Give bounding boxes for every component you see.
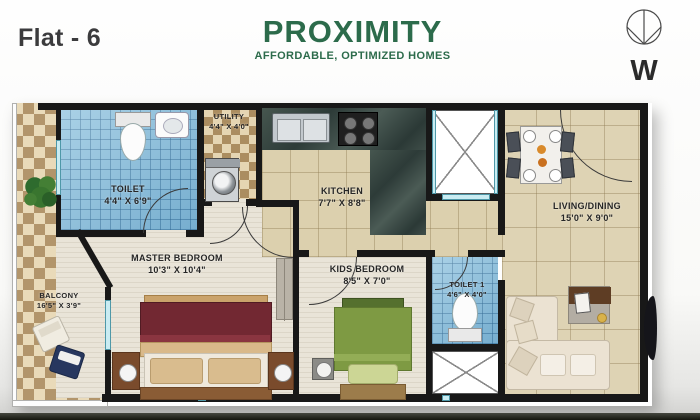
tv-icon <box>644 296 657 360</box>
compass-icon <box>621 6 667 50</box>
flat-number-label: Flat - 6 <box>18 24 101 53</box>
living-dining-label: LIVING/DINING15'0" X 9'0" <box>522 201 652 224</box>
window-bottom-kids <box>442 395 450 401</box>
wall-kitchen-living <box>498 103 505 235</box>
toilet1-label: TOILET 14'6" X 4'0" <box>433 280 501 300</box>
cushion-icon <box>570 354 596 376</box>
brand-block: PROXIMITY AFFORDABLE, OPTIMIZED HOMES <box>230 16 475 62</box>
wall-toilet-bottom-a <box>56 230 146 237</box>
double-bed-icon <box>140 295 270 398</box>
washing-machine-icon <box>205 158 239 202</box>
wall-toilet1-top-b <box>468 250 505 257</box>
brand-tagline: AFFORDABLE, OPTIMIZED HOMES <box>230 50 475 62</box>
duct-shaft-top <box>432 110 498 194</box>
dining-table-icon <box>520 126 562 184</box>
compass: W <box>618 6 670 86</box>
stool-icon <box>312 358 334 380</box>
wall-toilet1-shaft <box>432 344 502 351</box>
plant-icon <box>20 172 62 214</box>
balcony-parapet-bottom <box>12 400 108 407</box>
dining-chair-icon <box>560 157 575 178</box>
wall-kids-top-a <box>299 250 309 257</box>
window-shaft-left <box>432 110 436 194</box>
toilet-label: TOILET4'4" X 6'9" <box>68 184 188 207</box>
floorplan-poster: Flat - 6 PROXIMITY AFFORDABLE, OPTIMIZED… <box>0 0 700 420</box>
master-bedroom-label: MASTER BEDROOM10'3" X 10'4" <box>107 253 247 276</box>
compass-west-letter: W <box>618 57 670 86</box>
dining-chair-icon <box>506 131 521 152</box>
single-bed-icon <box>334 298 410 398</box>
toilet-icon <box>115 112 149 160</box>
cushion-icon <box>540 354 566 376</box>
balcony-parapet-left <box>12 103 17 406</box>
washbasin-icon <box>155 112 189 138</box>
kids-bedroom-label: KIDS BEDROOM8'5" X 7'0" <box>305 264 429 287</box>
nightstand-icon <box>268 352 294 390</box>
dining-chair-icon <box>506 157 521 178</box>
toilet-icon <box>448 293 480 341</box>
duct-shaft-bottom <box>432 351 500 394</box>
window-shaft-bottom <box>442 194 490 200</box>
window-shaft-right <box>494 110 498 194</box>
dining-chair-icon <box>560 131 575 152</box>
bottom-accent-bar <box>0 413 700 420</box>
balcony-label: BALCONY16'5" X 3'9" <box>12 291 106 311</box>
wall-toilet1-top-a <box>426 250 435 257</box>
nightstand-icon <box>112 352 140 390</box>
brand-name: PROXIMITY <box>230 16 475 49</box>
kitchen-sink-icon <box>272 113 330 143</box>
gas-stove-icon <box>338 112 378 146</box>
kitchen-label: KITCHEN7'7" X 8'8" <box>280 186 404 209</box>
wardrobe-icon <box>276 258 293 320</box>
wall-kids-top-b <box>357 250 432 257</box>
coffee-table-icon <box>568 286 610 324</box>
utility-label: UTILITY4'4" X 4'0" <box>198 112 260 132</box>
floor-plan: TOILET4'4" X 6'9" UTILITY4'4" X 4'0" KIT… <box>12 100 662 412</box>
